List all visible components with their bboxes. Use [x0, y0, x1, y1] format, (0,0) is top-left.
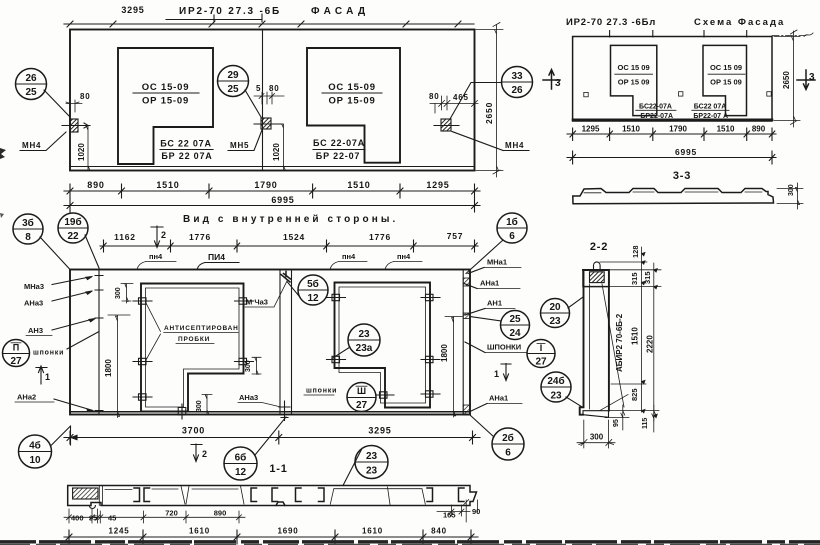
svg-text:АБИР2 70-6Б-2: АБИР2 70-6Б-2	[615, 313, 624, 372]
svg-text:22: 22	[67, 231, 79, 242]
svg-text:1020: 1020	[77, 143, 86, 161]
svg-text:1800: 1800	[104, 359, 113, 377]
svg-text:1295: 1295	[426, 180, 449, 190]
svg-text:29: 29	[227, 70, 239, 81]
svg-text:3295: 3295	[121, 5, 144, 15]
svg-text:300: 300	[196, 400, 203, 412]
svg-text:720: 720	[165, 509, 178, 518]
svg-text:25: 25	[227, 84, 239, 95]
svg-text:23: 23	[549, 316, 561, 327]
svg-text:П: П	[13, 343, 19, 353]
svg-text:8: 8	[25, 232, 31, 243]
svg-text:ПРОБКИ: ПРОБКИ	[178, 336, 210, 343]
svg-text:ПИ4: ПИ4	[208, 252, 225, 262]
svg-text:80: 80	[80, 92, 91, 101]
svg-text:300: 300	[590, 433, 604, 442]
svg-text:1510: 1510	[631, 327, 640, 345]
svg-text:АНа3: АНа3	[239, 393, 258, 402]
svg-text:1776: 1776	[189, 232, 211, 242]
svg-text:1524: 1524	[283, 232, 305, 242]
svg-text:1800: 1800	[440, 344, 449, 362]
svg-text:БР 22-07: БР 22-07	[316, 151, 360, 161]
svg-text:6: 6	[505, 448, 511, 459]
svg-text:2650: 2650	[484, 102, 494, 124]
svg-text:5б: 5б	[307, 278, 319, 290]
svg-text:80: 80	[429, 92, 440, 101]
svg-text:12: 12	[235, 467, 247, 478]
svg-text:24б: 24б	[547, 375, 564, 387]
svg-text:ФАСАД: ФАСАД	[311, 6, 369, 17]
svg-text:I: I	[540, 343, 543, 353]
svg-text:1610: 1610	[362, 527, 383, 536]
svg-text:шпонки: шпонки	[306, 388, 337, 395]
svg-text:1510: 1510	[622, 125, 640, 134]
svg-text:1610: 1610	[189, 527, 210, 536]
svg-text:пн4: пн4	[397, 252, 411, 261]
svg-text:5: 5	[256, 84, 261, 93]
svg-text:90: 90	[472, 507, 480, 516]
svg-text:33: 33	[511, 71, 523, 82]
svg-text:шпонки: шпонки	[33, 350, 64, 357]
svg-text:26: 26	[25, 73, 37, 84]
svg-text:пн4: пн4	[149, 252, 163, 261]
svg-text:БС22-07А: БС22-07А	[639, 104, 672, 111]
svg-text:МН5: МН5	[230, 141, 249, 150]
svg-text:2650: 2650	[782, 71, 791, 89]
svg-text:20: 20	[549, 302, 561, 313]
svg-text:19б: 19б	[64, 216, 81, 228]
svg-text:825: 825	[630, 388, 639, 401]
svg-text:3700: 3700	[182, 426, 205, 436]
svg-text:1: 1	[45, 372, 50, 382]
svg-text:ОР 15-09: ОР 15-09	[328, 96, 375, 107]
svg-text:3: 3	[555, 78, 561, 89]
svg-text:МН4: МН4	[22, 141, 41, 150]
svg-text:1510: 1510	[717, 125, 735, 134]
svg-text:МН4: МН4	[505, 141, 524, 150]
svg-text:27: 27	[356, 400, 368, 411]
svg-text:300: 300	[788, 184, 795, 196]
svg-text:12: 12	[307, 293, 319, 304]
svg-text:ОС 15-09: ОС 15-09	[142, 82, 190, 93]
svg-text:10: 10	[29, 455, 41, 466]
svg-text:315: 315	[630, 272, 639, 285]
svg-text:М Ча3: М Ча3	[246, 298, 268, 307]
svg-text:6995: 6995	[675, 147, 697, 157]
svg-text:26: 26	[511, 85, 523, 96]
svg-text:АНа3: АНа3	[24, 299, 43, 308]
svg-text:1245: 1245	[109, 527, 130, 536]
svg-text:АН3: АН3	[28, 326, 43, 335]
svg-text:МНа3: МНа3	[24, 282, 44, 291]
svg-text:Ш: Ш	[357, 386, 366, 396]
svg-text:1510: 1510	[156, 180, 179, 190]
svg-text:Схема Фасада: Схема Фасада	[694, 17, 785, 28]
svg-text:890: 890	[752, 125, 766, 134]
svg-text:ИР2-70 27.3 -6Бл: ИР2-70 27.3 -6Бл	[566, 17, 656, 28]
svg-text:ШПОНКИ: ШПОНКИ	[487, 343, 521, 352]
svg-text:БС22 07А: БС22 07А	[694, 104, 727, 111]
svg-text:300: 300	[115, 287, 122, 299]
svg-text:2-2: 2-2	[590, 241, 608, 253]
svg-text:23: 23	[550, 391, 562, 402]
svg-text:ИР2-70 27.3 -6Б: ИР2-70 27.3 -6Б	[179, 6, 281, 17]
svg-text:2: 2	[202, 449, 207, 459]
svg-text:1510: 1510	[347, 180, 370, 190]
svg-text:24: 24	[509, 328, 521, 339]
svg-text:757: 757	[447, 231, 464, 241]
svg-text:1776: 1776	[369, 232, 391, 242]
svg-text:23а: 23а	[356, 343, 373, 354]
svg-text:27: 27	[10, 356, 22, 367]
svg-text:23: 23	[358, 329, 370, 340]
svg-text:ОР 15 09: ОР 15 09	[710, 78, 742, 87]
svg-text:ОС 15 09: ОС 15 09	[618, 63, 650, 72]
svg-text:1790: 1790	[669, 125, 687, 134]
svg-text:Вид с внутренней стороны.: Вид с внутренней стороны.	[183, 214, 398, 225]
svg-text:2б: 2б	[502, 432, 514, 444]
svg-text:БС 22 07А: БС 22 07А	[160, 139, 212, 149]
svg-text:3-3: 3-3	[673, 170, 691, 182]
svg-text:АНа1: АНа1	[480, 279, 499, 288]
svg-text:23: 23	[366, 466, 378, 477]
svg-text:БР22-07 А: БР22-07 А	[693, 113, 728, 120]
svg-text:2220: 2220	[646, 335, 655, 353]
svg-text:пн4: пн4	[342, 252, 356, 261]
svg-text:ОС 15 09: ОС 15 09	[710, 63, 742, 72]
svg-text:АНа1: АНа1	[489, 394, 508, 403]
svg-text:6: 6	[509, 231, 515, 242]
svg-text:БР22-07А: БР22-07А	[640, 113, 673, 120]
svg-text:6б: 6б	[235, 452, 247, 464]
svg-text:1020: 1020	[272, 143, 281, 161]
svg-text:МНа1: МНа1	[487, 258, 507, 267]
svg-text:840: 840	[431, 527, 447, 536]
svg-text:АНТИСЕПТИРОВАН: АНТИСЕПТИРОВАН	[164, 325, 239, 332]
svg-text:4б: 4б	[29, 440, 41, 452]
svg-text:3295: 3295	[368, 426, 391, 436]
svg-text:ОР 15-09: ОР 15-09	[142, 96, 189, 107]
svg-text:25: 25	[509, 314, 521, 325]
svg-text:890: 890	[214, 509, 227, 518]
svg-text:45: 45	[108, 514, 116, 523]
svg-text:25: 25	[25, 87, 37, 98]
svg-text:АН1: АН1	[487, 299, 502, 308]
svg-text:400: 400	[71, 514, 84, 523]
svg-text:3б: 3б	[22, 217, 34, 229]
svg-text:1162: 1162	[114, 232, 136, 242]
svg-text:1б: 1б	[506, 216, 518, 228]
svg-text:115: 115	[642, 418, 649, 429]
svg-text:ОС 15-09: ОС 15-09	[328, 82, 376, 93]
svg-text:АНа2: АНа2	[17, 393, 36, 402]
svg-text:95: 95	[613, 419, 620, 427]
svg-text:315: 315	[643, 271, 652, 284]
svg-text:1690: 1690	[278, 527, 299, 536]
svg-text:3: 3	[809, 72, 815, 83]
svg-text:95: 95	[89, 514, 97, 523]
svg-text:1: 1	[494, 369, 499, 379]
svg-text:27: 27	[535, 357, 547, 368]
svg-text:1790: 1790	[254, 180, 277, 190]
svg-text:БС 22-07А: БС 22-07А	[313, 138, 365, 148]
svg-text:2: 2	[161, 230, 166, 240]
svg-text:890: 890	[87, 180, 104, 190]
svg-text:1295: 1295	[582, 125, 600, 134]
svg-text:ОР 15 09: ОР 15 09	[618, 78, 650, 87]
svg-text:1-1: 1-1	[269, 463, 287, 475]
svg-text:165: 165	[443, 511, 456, 520]
svg-text:80: 80	[269, 84, 280, 93]
svg-text:300: 300	[245, 360, 252, 372]
svg-text:БР 22 07А: БР 22 07А	[161, 151, 212, 161]
svg-text:128: 128	[631, 245, 640, 258]
svg-text:6995: 6995	[271, 195, 294, 205]
svg-text:23: 23	[366, 451, 378, 462]
